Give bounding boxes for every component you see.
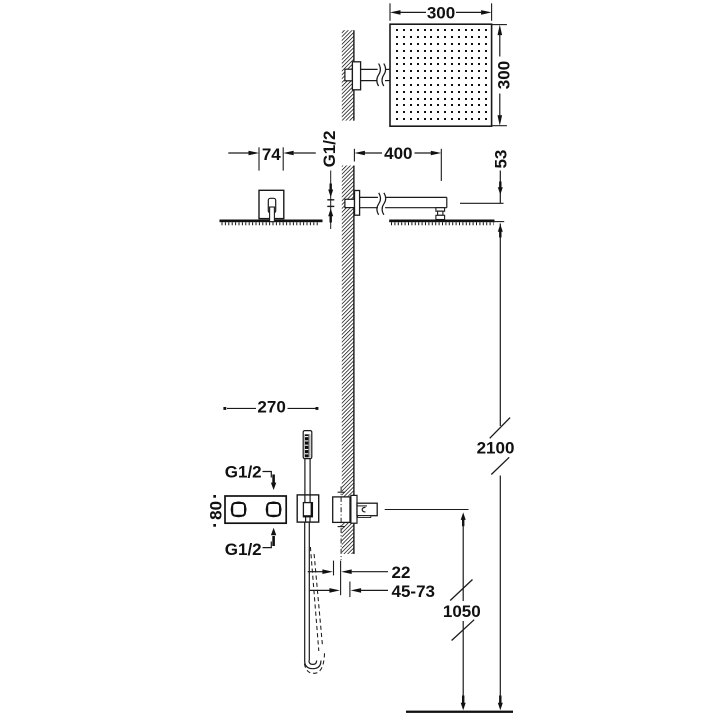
- svg-text:80: 80: [206, 501, 225, 520]
- svg-text:1050: 1050: [443, 602, 481, 621]
- svg-text:G1/2: G1/2: [225, 540, 262, 559]
- svg-text:400: 400: [384, 144, 412, 163]
- svg-text:270: 270: [257, 398, 285, 417]
- svg-text:74: 74: [262, 145, 281, 164]
- svg-text:2100: 2100: [477, 438, 515, 457]
- svg-text:53: 53: [492, 150, 511, 169]
- svg-text:22: 22: [392, 563, 411, 582]
- svg-text:45-73: 45-73: [392, 582, 435, 601]
- svg-text:300: 300: [494, 61, 513, 89]
- svg-text:300: 300: [427, 3, 455, 22]
- svg-text:G1/2: G1/2: [320, 131, 339, 168]
- svg-text:G1/2: G1/2: [225, 462, 262, 481]
